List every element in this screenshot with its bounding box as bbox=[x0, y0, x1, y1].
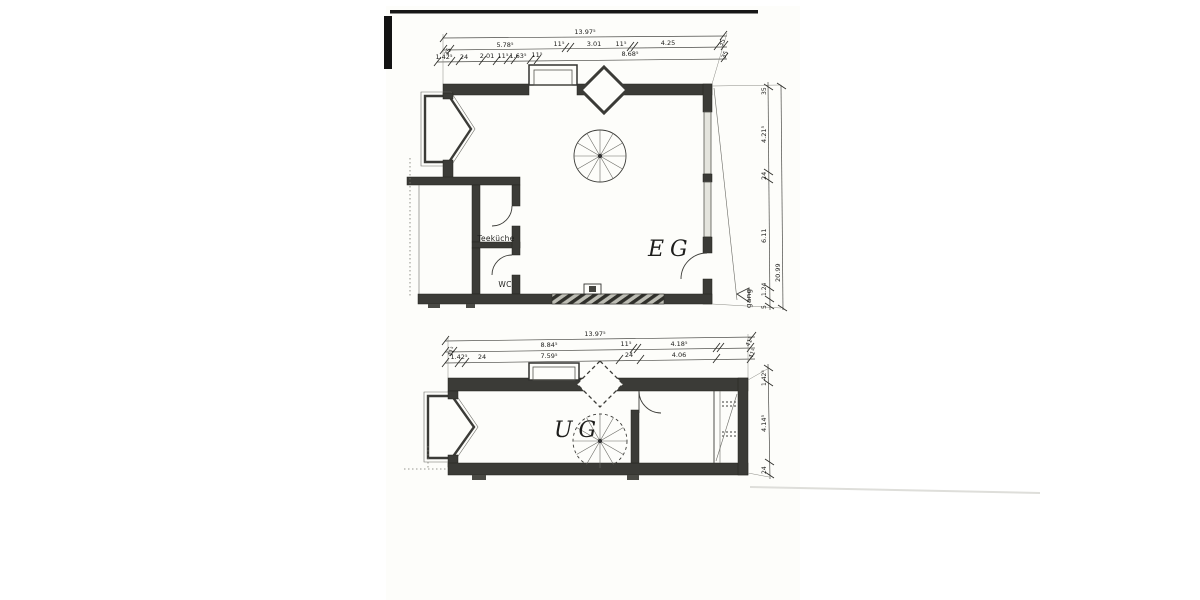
ug-dim-label: 8.84⁵ bbox=[540, 341, 557, 349]
ug-dim-label: 4.18⁵ bbox=[670, 340, 687, 348]
eg-dim-label: 1.42⁵ bbox=[435, 53, 452, 61]
eg-window bbox=[704, 112, 711, 174]
eg-room-label-teekueche: Teeküche bbox=[476, 234, 514, 243]
svg-text:1.42⁵: 1.42⁵ bbox=[761, 370, 768, 386]
eg-dim-label: 4.25 bbox=[661, 39, 675, 47]
eg-roof-box bbox=[529, 65, 577, 85]
ug-partition-wall bbox=[631, 410, 639, 463]
eg-dim-label: 11⁵ bbox=[616, 40, 627, 48]
eg-pier bbox=[428, 304, 440, 308]
eg-left-wall bbox=[443, 93, 453, 99]
eg-top-wall bbox=[623, 84, 712, 95]
eg-partition-wall bbox=[512, 275, 520, 294]
ug-left-wall bbox=[448, 391, 458, 399]
svg-text:24: 24 bbox=[761, 466, 768, 474]
eg-floor-label: EG bbox=[647, 237, 694, 262]
ug-pier bbox=[472, 475, 486, 480]
ug-right-wall bbox=[738, 378, 748, 475]
eg-dim-total: 13.97⁵ bbox=[574, 28, 596, 36]
eg-right-wall bbox=[703, 84, 712, 112]
eg-fixture-inner bbox=[589, 286, 596, 292]
eg-spiral-stair bbox=[574, 130, 626, 182]
scan-edge-line bbox=[390, 10, 758, 14]
eg-gang-label: gang bbox=[745, 288, 753, 308]
svg-text:4.21⁵: 4.21⁵ bbox=[760, 126, 768, 143]
svg-text:6.11: 6.11 bbox=[760, 229, 768, 243]
eg-right-wall bbox=[703, 237, 712, 253]
ug-bottom-wall bbox=[448, 463, 748, 475]
ug-dim-label: 1.42⁵ bbox=[450, 353, 467, 361]
svg-text:1.24: 1.24 bbox=[761, 282, 768, 296]
ug-floor-label: UG bbox=[554, 418, 602, 443]
eg-partition-wall bbox=[512, 185, 520, 206]
eg-partition-wall bbox=[472, 248, 480, 294]
svg-text:24: 24 bbox=[760, 172, 768, 180]
ug-dim-label: 24 bbox=[478, 353, 486, 361]
eg-room-label-wc: WC bbox=[498, 280, 511, 289]
ug-dim-label: 7.59⁵ bbox=[540, 352, 557, 360]
eg-right-wall bbox=[703, 174, 712, 182]
ug-dim-total: 13.97⁵ bbox=[584, 330, 606, 338]
eg-dim-label: 11⁵ bbox=[498, 52, 509, 60]
floorplan-scan: 13.97⁵ 35 5.78⁵ 11⁵ 3.01 11⁵ 4.25 35 1.4… bbox=[0, 0, 1200, 600]
eg-dim-label: 5.78⁵ bbox=[496, 41, 513, 49]
eg-dim-label: 8.68⁵ bbox=[621, 50, 638, 58]
eg-dim-label: 2.01 bbox=[480, 52, 494, 60]
eg-dim-label: 1.63⁵ bbox=[509, 52, 526, 60]
eg-window bbox=[704, 182, 711, 237]
ug-roof-box bbox=[529, 363, 579, 380]
eg-top-wall bbox=[443, 84, 529, 95]
svg-text:5: 5 bbox=[761, 305, 768, 309]
ug-dim-label: 11⁵ bbox=[621, 340, 632, 348]
ug-dim-label: 24 bbox=[625, 351, 633, 359]
ug-pier bbox=[627, 475, 639, 480]
svg-text:4.14⁵: 4.14⁵ bbox=[760, 415, 768, 432]
ug-dim-label: 4.06 bbox=[672, 351, 686, 359]
eg-dim-label: 11⁵ bbox=[554, 40, 565, 48]
eg-dim-label: 3.01 bbox=[587, 40, 601, 48]
eg-pier bbox=[466, 304, 475, 308]
scan-edge-bar bbox=[384, 16, 392, 69]
eg-bottom-window-band bbox=[552, 294, 664, 304]
svg-text:20.99: 20.99 bbox=[774, 263, 782, 282]
eg-dim-label: 24 bbox=[460, 53, 468, 61]
eg-step-wall bbox=[407, 177, 520, 185]
svg-text:35: 35 bbox=[761, 87, 768, 95]
eg-dim-label: 11⁵ bbox=[532, 51, 543, 59]
